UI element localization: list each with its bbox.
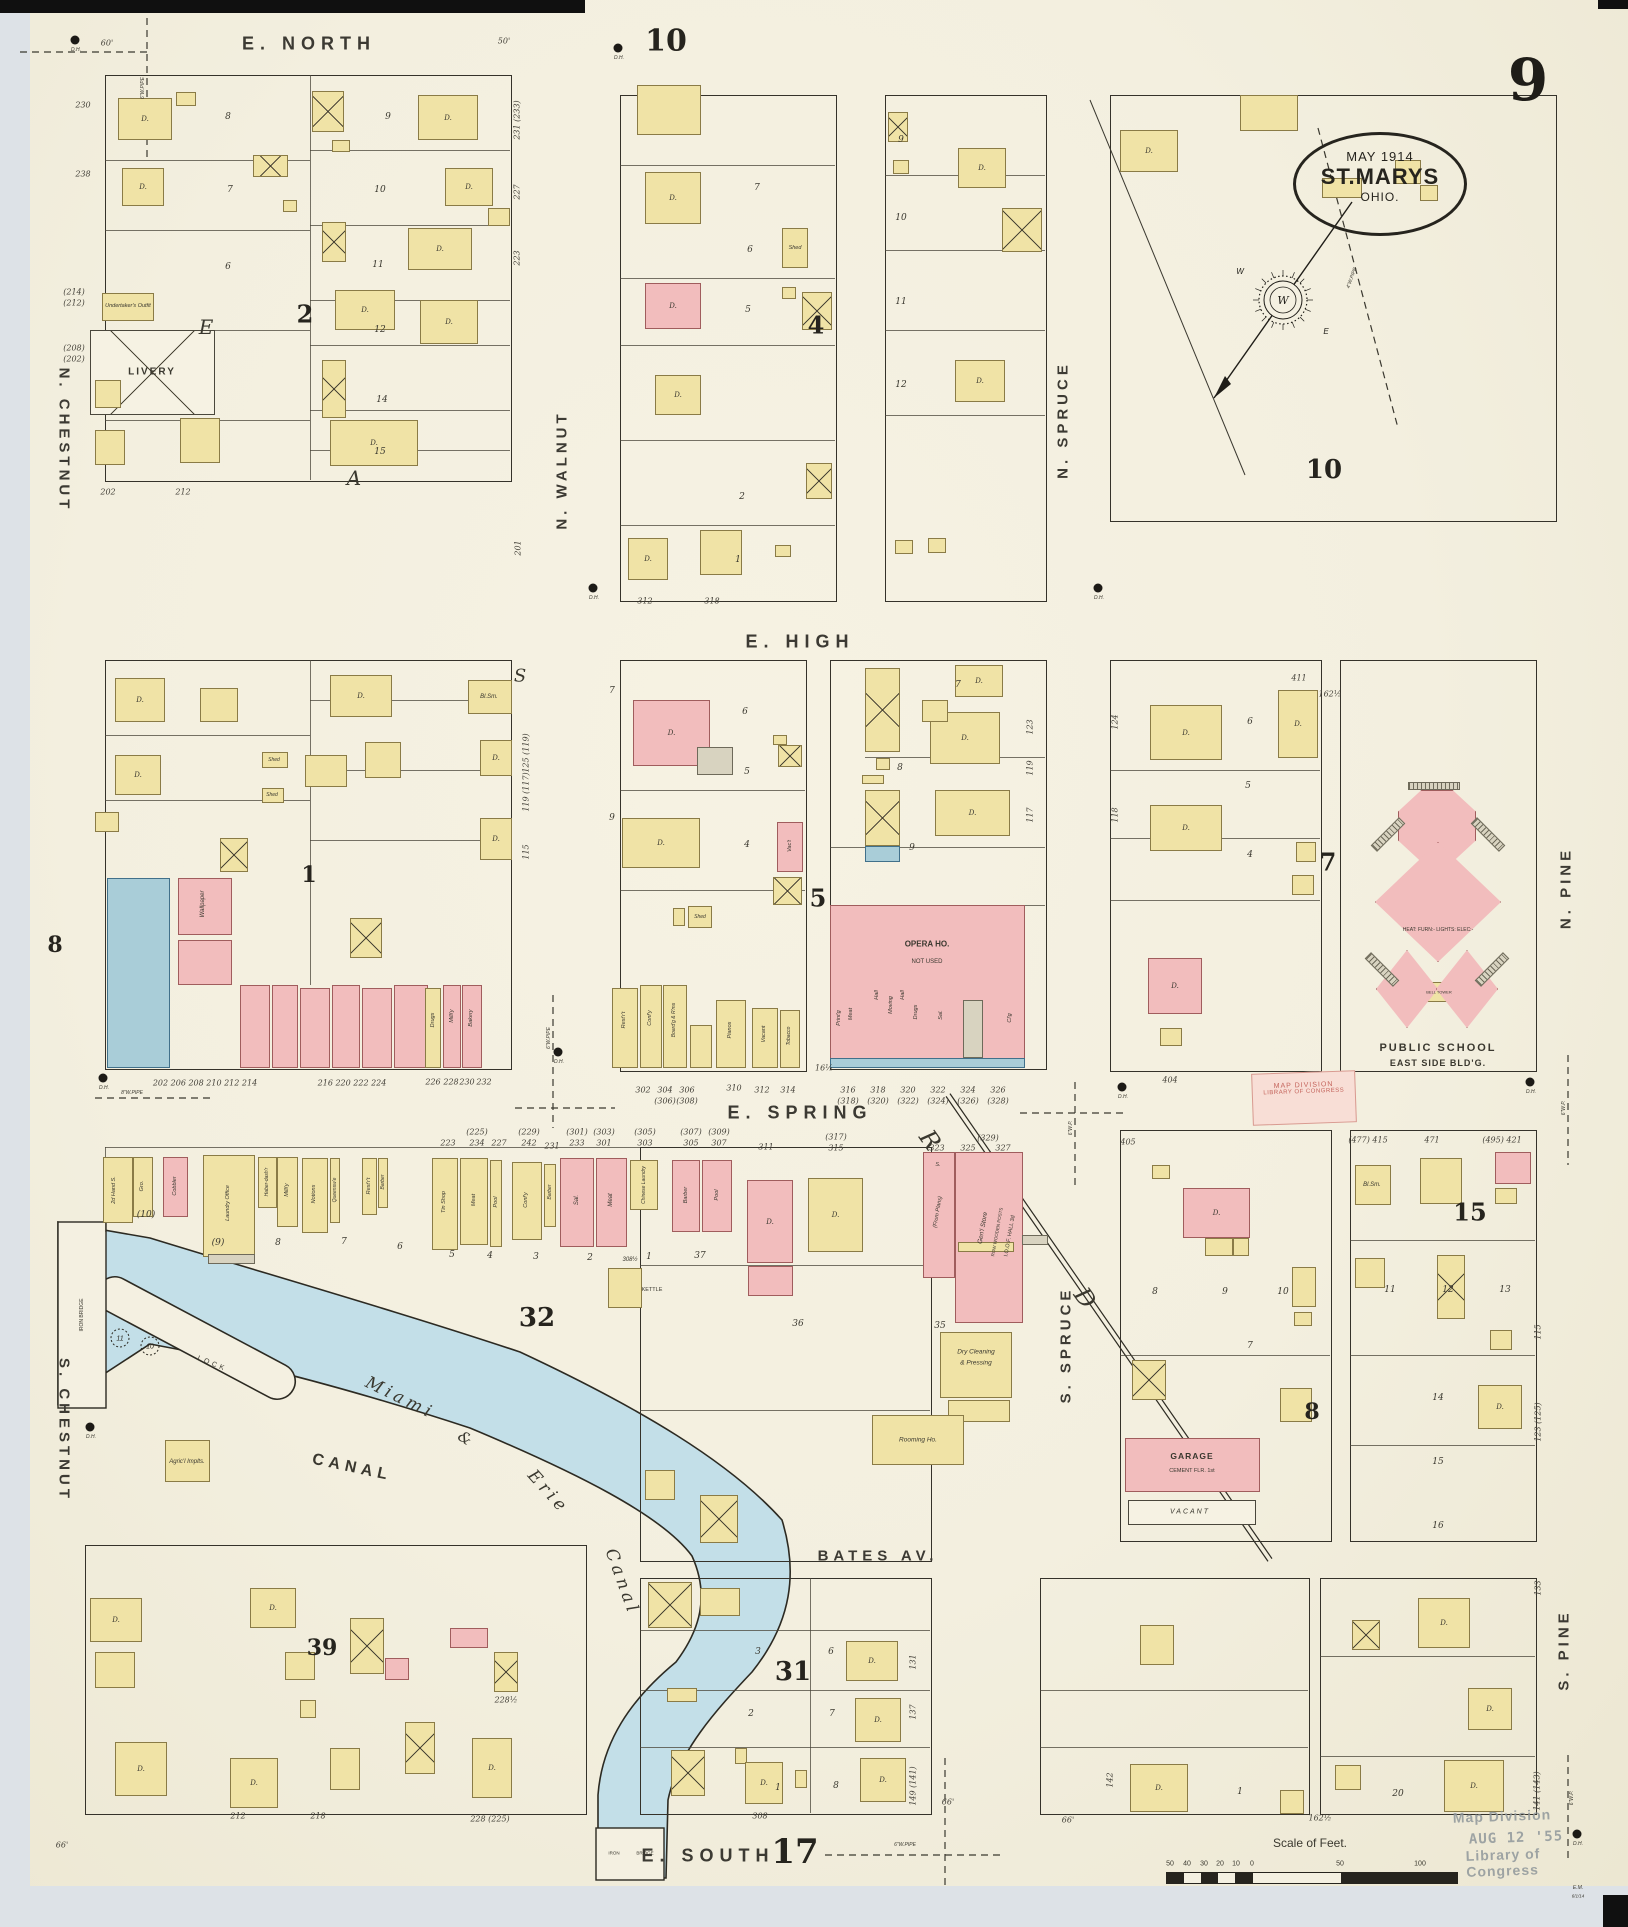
building <box>330 1748 360 1790</box>
building <box>1132 1360 1166 1400</box>
building <box>208 1254 255 1264</box>
scale-segment <box>1253 1873 1341 1883</box>
building-label: D. <box>874 1716 882 1724</box>
building: D. <box>1150 705 1222 760</box>
building <box>362 988 392 1068</box>
map-label: CEMENT FLR. 1st <box>1169 1468 1214 1474</box>
map-label: Pool <box>493 1196 499 1207</box>
map-label: Hall <box>874 990 880 999</box>
street-number: 202 <box>100 488 115 497</box>
block-number: 1 <box>301 862 316 888</box>
street-number: (307) <box>680 1128 702 1137</box>
building-label: D. <box>961 734 969 742</box>
street-number: 231 <box>544 1142 559 1151</box>
lot-line <box>620 278 835 279</box>
street-number: (308) <box>676 1097 698 1106</box>
map-label: Vac't <box>787 840 793 852</box>
building <box>773 735 787 745</box>
lot-line <box>885 330 1045 331</box>
building-label: D. <box>1294 720 1302 728</box>
building: D. <box>330 675 392 717</box>
lot-number: 35 <box>934 1321 945 1331</box>
map-label: S <box>514 666 526 687</box>
building-label: D. <box>668 729 676 737</box>
street-number: 314 <box>780 1086 795 1095</box>
street-number: 212 <box>230 1812 245 1821</box>
building <box>1355 1258 1385 1288</box>
building-label: D. <box>465 183 473 191</box>
street-number: 66' <box>56 1841 68 1850</box>
building <box>865 846 900 862</box>
hydrant-label: D.H. <box>554 1059 564 1065</box>
street-number: 242 <box>521 1139 536 1148</box>
street-number: 218 <box>310 1812 325 1821</box>
block-number: 5 <box>810 884 827 913</box>
street-label-e-south: E. SOUTH <box>641 1846 774 1867</box>
street-number: 325 <box>960 1144 975 1153</box>
lot-number: 9 <box>385 112 391 122</box>
map-label: A <box>347 466 361 490</box>
scale-tick: 10 <box>1232 1861 1240 1868</box>
street-label-n-chestnut: N. CHESTNUT <box>56 368 73 513</box>
building <box>1352 1620 1380 1650</box>
building <box>782 287 796 299</box>
street-number: (309) <box>708 1128 730 1137</box>
street-number: 202 206 208 210 212 214 <box>153 1079 257 1088</box>
lot-number: 5 <box>744 767 750 777</box>
building <box>283 200 297 212</box>
street-number: 238 <box>75 170 90 179</box>
building: D. <box>115 755 161 795</box>
lot-line <box>620 790 805 791</box>
building <box>778 745 802 767</box>
lot-line <box>310 75 311 480</box>
street-number: 471 <box>1424 1136 1439 1145</box>
street-number: 307 <box>711 1139 726 1148</box>
building: D. <box>115 1742 167 1796</box>
map-label: 6"W.PIPE <box>140 77 146 99</box>
lot-number: 11 <box>895 297 906 307</box>
map-label: 8"W.PIPE <box>121 1090 143 1096</box>
street-number: 405 <box>1120 1138 1135 1147</box>
lot-number: 6 <box>742 707 748 717</box>
street-number: 137 <box>909 1704 918 1719</box>
lot-number: 6 <box>747 245 753 255</box>
lot-line <box>810 1578 811 1813</box>
street-number: 216 220 222 224 <box>318 1079 387 1088</box>
building: D. <box>122 168 164 206</box>
hydrant-dot <box>614 44 623 53</box>
building <box>1292 875 1314 895</box>
lot-number: 1 <box>775 1783 781 1793</box>
building <box>700 1495 738 1543</box>
sheet-number: 9 <box>1508 46 1548 114</box>
street-number: 230 <box>459 1078 474 1087</box>
lot-number: 8 <box>833 1781 839 1791</box>
street-number: 230 <box>75 101 90 110</box>
lot-number: 7 <box>341 1237 347 1247</box>
building: D. <box>622 818 700 868</box>
map-label: Pool <box>714 1189 720 1200</box>
building: D. <box>330 420 418 466</box>
building <box>1495 1152 1531 1184</box>
street-number: 320 <box>900 1086 915 1095</box>
street-number: 234 <box>469 1139 484 1148</box>
lot-number: 15 <box>374 447 385 457</box>
lot-number: 14 <box>376 395 387 405</box>
building <box>95 430 125 465</box>
map-label: Shed <box>789 245 802 251</box>
map-label: Print'g <box>836 1010 842 1025</box>
street-number: 310 <box>726 1084 741 1093</box>
scale-segment <box>1235 1873 1253 1883</box>
building-label: D. <box>250 1779 258 1787</box>
street-number: 302 <box>635 1086 650 1095</box>
building <box>1296 842 1316 862</box>
building <box>332 985 360 1068</box>
building-label: D. <box>760 1779 768 1787</box>
lot-number: 10 <box>374 185 385 195</box>
lot-number: 15 <box>1432 1457 1443 1467</box>
building <box>253 155 288 177</box>
map-label: Milli'y <box>449 1009 455 1022</box>
block-number: 8 <box>1304 1399 1319 1425</box>
map-label: Tin Shop <box>441 1191 447 1213</box>
hydrant-dot <box>99 1074 108 1083</box>
lot-line <box>640 1410 930 1411</box>
lot-line <box>1110 770 1320 771</box>
hydrant-dot <box>1118 1083 1127 1092</box>
lot-number: 7 <box>754 183 760 193</box>
lot-line <box>105 735 310 736</box>
building: D. <box>90 1598 142 1642</box>
scale-tick: 50 <box>1166 1861 1174 1868</box>
building-label: D. <box>136 696 144 704</box>
building-label: D. <box>669 194 677 202</box>
lot-number: 8 <box>1152 1287 1158 1297</box>
street-number: 227 <box>491 1139 506 1148</box>
building: D. <box>118 98 172 140</box>
building <box>425 988 441 1068</box>
building: D. <box>958 148 1006 188</box>
building-label: D. <box>141 115 149 123</box>
lot-number: 8 <box>225 112 231 122</box>
lot-line <box>620 525 835 526</box>
street-number: (322) <box>897 1097 919 1106</box>
block-number: 17 <box>771 1832 818 1872</box>
building: D. <box>250 1588 296 1628</box>
building-label: D. <box>1486 1705 1494 1713</box>
building: D. <box>955 360 1005 402</box>
map-label: Rooming Ho. <box>899 1437 937 1444</box>
building <box>922 700 948 722</box>
block-number: 7 <box>1320 848 1337 877</box>
hydrant-dot <box>1094 584 1103 593</box>
map-label: PUBLIC SCHOOL <box>1379 1042 1496 1054</box>
scale-segment <box>1184 1873 1201 1883</box>
film-edge-corner <box>1603 1895 1628 1927</box>
hydrant-dot <box>554 1048 563 1057</box>
lot-number: 10 <box>1277 1287 1288 1297</box>
title-state: OHIO. <box>1296 190 1464 204</box>
building <box>95 380 121 408</box>
street-number: 124 <box>1111 714 1120 729</box>
building <box>394 985 428 1068</box>
map-label: Laundry Office <box>225 1185 231 1221</box>
lot-line <box>1120 1355 1330 1356</box>
lot-line <box>640 1630 930 1631</box>
building-label: D. <box>978 164 986 172</box>
street-number: (317) <box>825 1133 847 1142</box>
title-stamp: MAY 1914 ST.MARYS OHIO. <box>1293 132 1467 236</box>
map-label: Dry Cleaning <box>957 1349 995 1356</box>
block-number: 39 <box>307 1635 338 1661</box>
lot-number: 5 <box>745 305 751 315</box>
street-number: 308 <box>752 1812 767 1821</box>
street-number: 315 <box>828 1144 843 1153</box>
building <box>180 418 220 463</box>
map-label: E <box>199 315 214 339</box>
map-label: Agric'l Implts. <box>169 1459 204 1465</box>
building-label: D. <box>657 839 665 847</box>
building <box>95 1652 135 1688</box>
building <box>488 208 510 226</box>
building <box>697 747 733 775</box>
scale-segment <box>1201 1873 1218 1883</box>
map-label: Wallpaper <box>200 891 206 918</box>
lot-line <box>105 1147 640 1148</box>
building <box>1280 1790 1304 1814</box>
street-number: 231 (233) <box>513 100 522 139</box>
lot-number: (9) <box>212 1238 225 1248</box>
building-label: D. <box>1182 824 1190 832</box>
street-number: 133 <box>1534 1580 1543 1595</box>
building: D. <box>846 1641 898 1681</box>
map-label: 6"W.PIPE <box>546 1027 552 1049</box>
building: D. <box>1120 130 1178 172</box>
building <box>830 1058 1025 1068</box>
lot-number: 6 <box>828 1647 834 1657</box>
street-number: 323 <box>929 1144 944 1153</box>
hydrant-dot <box>1573 1830 1582 1839</box>
building <box>795 1770 807 1788</box>
building-label: D. <box>361 306 369 314</box>
building <box>95 812 119 832</box>
building: D. <box>445 168 493 206</box>
map-label: S. <box>935 1162 940 1168</box>
building <box>178 940 232 985</box>
hydrant-label: D.H. <box>589 595 599 601</box>
street-number: 322 <box>930 1086 945 1095</box>
building <box>305 755 347 787</box>
street-label-e-spring: E. SPRING <box>727 1103 872 1124</box>
street-number: 228 (225) <box>470 1815 509 1824</box>
lot-number: 1 <box>1237 1787 1243 1797</box>
lot-number: 10 <box>895 213 906 223</box>
lot-number: 7 <box>227 185 233 195</box>
map-label: LIVERY <box>128 367 176 378</box>
street-number: 162½ <box>1308 1814 1331 1823</box>
map-label: Bakery <box>468 1009 474 1026</box>
svg-text:10: 10 <box>146 1344 154 1351</box>
building-label: D. <box>1213 1209 1221 1217</box>
building <box>200 688 238 722</box>
map-label: Notions <box>311 1185 317 1204</box>
street-number: (324) <box>927 1097 949 1106</box>
street-number: 228½ <box>494 1696 517 1705</box>
hydrant-dot <box>589 584 598 593</box>
building: D. <box>1183 1188 1250 1238</box>
survey-date: 6/1/14 <box>1572 1894 1585 1899</box>
street-number: 227 <box>513 184 522 199</box>
street-number: 50' <box>498 37 510 46</box>
building-label: D. <box>492 754 500 762</box>
street-number: (326) <box>957 1097 979 1106</box>
building <box>1335 1765 1361 1790</box>
street-number: 316 <box>840 1086 855 1095</box>
building <box>350 1618 384 1674</box>
street-number: 232 <box>476 1078 491 1087</box>
lot-number: 16 <box>1432 1521 1443 1531</box>
lot-line <box>620 345 835 346</box>
street-number: (320) <box>867 1097 889 1106</box>
building <box>1294 1312 1312 1326</box>
building <box>300 988 330 1068</box>
lot-number: 14 <box>1432 1393 1443 1403</box>
lot-number: 6 <box>1247 717 1253 727</box>
street-number: 324 <box>960 1086 975 1095</box>
lot-line <box>620 440 835 441</box>
hydrant-label: D.H. <box>99 1085 109 1091</box>
map-label: HEAT: FURN:- LIGHTS: ELEC:- <box>1403 927 1473 933</box>
map-label: Queensw'e <box>332 1178 338 1203</box>
map-label: Tobacco <box>786 1027 792 1046</box>
building <box>748 1266 793 1296</box>
hydrant-label: D.H. <box>1094 595 1104 601</box>
lot-number: 2 <box>587 1253 593 1263</box>
scale-tick: 100 <box>1414 1861 1426 1868</box>
lot-line <box>1350 1355 1535 1356</box>
lot-number: (10) <box>137 1210 155 1220</box>
building <box>1140 1625 1174 1665</box>
building <box>220 838 248 872</box>
street-number: 131 <box>909 1654 918 1669</box>
street-number: (495) 421 <box>1482 1136 1521 1145</box>
building <box>1002 208 1042 252</box>
street-number: 327 <box>995 1144 1010 1153</box>
building-label: D. <box>832 1211 840 1219</box>
street-number: 60' <box>101 39 113 48</box>
building <box>1495 1188 1517 1204</box>
street-number: 142 <box>1106 1772 1115 1787</box>
building <box>1152 1165 1170 1179</box>
map-label: Shed <box>268 757 280 763</box>
street-label-e-north: E. NORTH <box>242 34 376 55</box>
lot-line <box>830 847 1045 848</box>
hydrant-label: D.H. <box>1118 1094 1128 1100</box>
map-label: 6"W.PIPE <box>894 1842 916 1848</box>
building-label: D. <box>137 1765 145 1773</box>
building <box>322 222 346 262</box>
building: D. <box>1150 805 1222 851</box>
lot-line <box>620 165 835 166</box>
building <box>365 742 401 778</box>
lot-number: 1 <box>646 1252 652 1262</box>
building <box>667 1688 697 1702</box>
map-label: 6"W.P. <box>1068 1121 1074 1136</box>
lot-number: 7 <box>829 1709 835 1719</box>
lot-number: 8 <box>897 763 903 773</box>
building <box>1205 1238 1233 1256</box>
lot-number: 20 <box>1392 1789 1403 1799</box>
map-label: GARAGE <box>1170 1451 1213 1461</box>
map-label: OPERA HO. <box>905 940 950 949</box>
street-number: 117 <box>1026 807 1035 822</box>
school-porch <box>1408 782 1460 790</box>
map-label: BRIDGE <box>636 1851 653 1856</box>
building <box>865 668 900 752</box>
scale-segment <box>1341 1873 1457 1883</box>
building-label: D. <box>969 809 977 817</box>
building <box>690 1025 712 1068</box>
sanborn-map-sheet: 1110WWE D.D.D.D.D.D.D.D.D.D.D.D.D.D.D.D.… <box>0 0 1628 1927</box>
building: D. <box>1148 958 1202 1014</box>
lot-number: 12 <box>1442 1285 1453 1295</box>
hydrant-dot <box>71 36 80 45</box>
street-number: 306 <box>679 1086 694 1095</box>
building <box>806 463 832 499</box>
building <box>332 140 350 152</box>
map-label: 6"W.P. <box>1561 1101 1567 1116</box>
lot-number: 2 <box>748 1709 754 1719</box>
street-number: 125 (119) <box>522 733 531 772</box>
lot-line <box>310 345 510 346</box>
building <box>955 1152 1023 1323</box>
lot-line <box>1040 1747 1308 1748</box>
building <box>673 908 685 926</box>
map-label: BELL TOWER <box>1426 990 1452 995</box>
lot-number: 4 <box>744 840 750 850</box>
street-number: 162½ <box>1318 690 1341 699</box>
lot-line <box>310 660 311 985</box>
street-label-s-chestnut: S. CHESTNUT <box>56 1358 73 1502</box>
building <box>1160 1028 1182 1046</box>
building <box>1240 95 1298 131</box>
building: D. <box>747 1180 793 1263</box>
building: D. <box>935 790 1010 836</box>
building-label: D. <box>766 1218 774 1226</box>
street-number: 223 <box>513 250 522 265</box>
building: D. <box>230 1758 278 1808</box>
lot-number: 6 <box>225 262 231 272</box>
map-label: Sal. <box>938 1010 944 1019</box>
building-label: D. <box>269 1604 277 1612</box>
building: D. <box>115 678 165 722</box>
building <box>385 1658 409 1680</box>
map-label: Conf'y <box>647 1010 653 1025</box>
street-label-n-spruce: N. SPRUCE <box>1055 361 1072 479</box>
street-number: 66' <box>1062 1816 1074 1825</box>
street-number: 312 <box>754 1086 769 1095</box>
building-label: D. <box>445 318 453 326</box>
map-label: Chinese Laundry <box>641 1166 647 1204</box>
svg-text:11: 11 <box>116 1336 123 1343</box>
street-number: (328) <box>987 1097 1009 1106</box>
building-label: D. <box>1171 982 1179 990</box>
hydrant-label: D.H. <box>1573 1841 1583 1847</box>
hydrant-label: D.H. <box>86 1434 96 1440</box>
street-number: 115 <box>1534 1324 1543 1339</box>
